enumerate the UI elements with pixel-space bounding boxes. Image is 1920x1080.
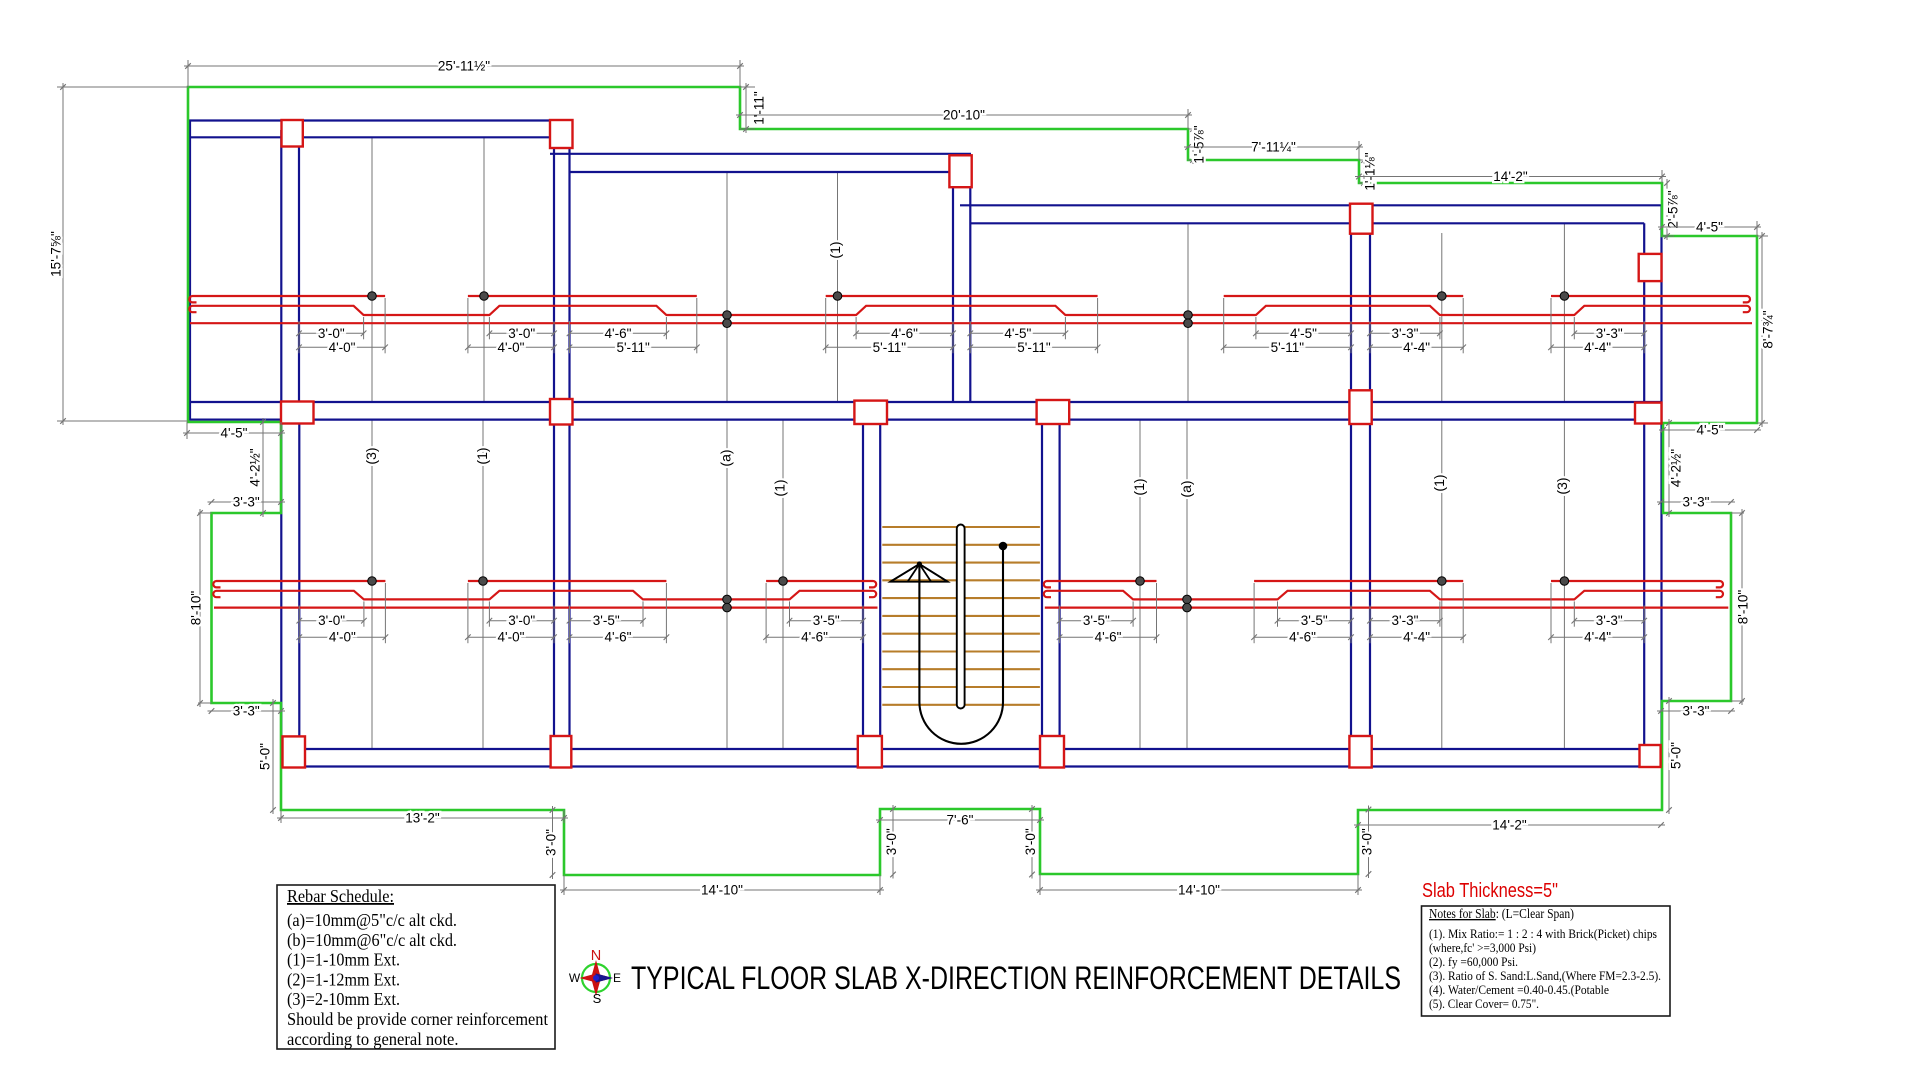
svg-text:Notes for Slab: (L=Clear Span): Notes for Slab: (L=Clear Span): [1429, 906, 1574, 921]
svg-text:(a): (a): [717, 449, 733, 466]
svg-text:4'-6": 4'-6": [801, 630, 828, 645]
svg-text:20'-10": 20'-10": [943, 108, 985, 123]
svg-text:14'-10": 14'-10": [1178, 883, 1220, 898]
svg-text:4'-6": 4'-6": [1095, 630, 1122, 645]
svg-text:(1): (1): [772, 479, 788, 496]
svg-text:4'-6": 4'-6": [1289, 630, 1316, 645]
svg-text:1'-1⅛": 1'-1⅛": [1363, 152, 1378, 190]
svg-text:14'-2": 14'-2": [1493, 169, 1528, 184]
svg-text:4'-0": 4'-0": [498, 630, 525, 645]
svg-text:Rebar Schedule:: Rebar Schedule:: [287, 886, 394, 906]
svg-text:4'-4": 4'-4": [1584, 340, 1611, 355]
svg-text:4'-5": 4'-5": [1004, 326, 1031, 341]
svg-text:3'-0": 3'-0": [318, 613, 345, 628]
svg-text:5'-0": 5'-0": [258, 743, 273, 770]
svg-text:3'-0": 3'-0": [508, 326, 535, 341]
svg-text:5'-11": 5'-11": [616, 340, 650, 355]
svg-text:Slab Thickness=5": Slab Thickness=5": [1422, 880, 1558, 902]
svg-text:5'-11": 5'-11": [873, 340, 907, 355]
svg-text:(2). fy =60,000 Psi.: (2). fy =60,000 Psi.: [1429, 955, 1518, 969]
svg-text:4'-0": 4'-0": [498, 340, 525, 355]
svg-text:3'-3": 3'-3": [1683, 704, 1710, 719]
svg-text:5'-11": 5'-11": [1017, 340, 1051, 355]
svg-text:(a): (a): [1178, 480, 1194, 497]
svg-text:4'-6": 4'-6": [605, 326, 632, 341]
svg-text:(where,fc' >=3,000 Psi): (where,fc' >=3,000 Psi): [1429, 941, 1536, 955]
svg-text:3'-3": 3'-3": [233, 704, 260, 719]
svg-text:(b)=10mm@6"c/c alt ckd.: (b)=10mm@6"c/c alt ckd.: [287, 930, 457, 950]
svg-text:8'-10": 8'-10": [1736, 590, 1751, 625]
svg-text:8'-7¾": 8'-7¾": [1761, 310, 1776, 348]
svg-text:2'-5⅞": 2'-5⅞": [1666, 190, 1681, 228]
svg-text:(a)=10mm@5"c/c alt ckd.: (a)=10mm@5"c/c alt ckd.: [287, 910, 457, 930]
svg-text:3'-0": 3'-0": [508, 613, 535, 628]
svg-text:4'-4": 4'-4": [1403, 630, 1430, 645]
svg-text:4'-5": 4'-5": [221, 426, 248, 441]
svg-text:TYPICAL FLOOR SLAB X-DIRECTION: TYPICAL FLOOR SLAB X-DIRECTION REINFORCE…: [631, 960, 1401, 996]
svg-text:4'-5": 4'-5": [1696, 220, 1723, 235]
svg-text:(1)=1-10mm Ext.: (1)=1-10mm Ext.: [287, 950, 400, 970]
svg-text:(4). Water/Cement =0.40-0.45.(: (4). Water/Cement =0.40-0.45.(Potable: [1429, 983, 1609, 997]
svg-text:4'-4": 4'-4": [1584, 630, 1611, 645]
svg-text:Should be provide corner reinf: Should be provide corner reinforcement: [287, 1009, 548, 1029]
svg-text:3'-3": 3'-3": [1683, 495, 1710, 510]
svg-text:(1): (1): [474, 447, 490, 464]
svg-text:3'-5": 3'-5": [593, 613, 620, 628]
svg-text:14'-2": 14'-2": [1492, 818, 1527, 833]
svg-text:3'-0": 3'-0": [1360, 828, 1375, 855]
svg-text:3'-5": 3'-5": [1083, 613, 1110, 628]
svg-text:3'-3": 3'-3": [1392, 326, 1419, 341]
svg-text:(1): (1): [1131, 478, 1147, 495]
svg-text:(1): (1): [827, 241, 843, 258]
svg-text:4'-6": 4'-6": [891, 326, 918, 341]
svg-text:(3). Ratio of S. Sand:L.Sand,(: (3). Ratio of S. Sand:L.Sand,(Where FM=2…: [1429, 969, 1661, 983]
svg-text:(2)=1-12mm Ext.: (2)=1-12mm Ext.: [287, 969, 400, 989]
svg-text:5'-11": 5'-11": [1271, 340, 1305, 355]
svg-text:3'-0": 3'-0": [318, 326, 345, 341]
svg-text:according to general note.: according to general note.: [287, 1029, 459, 1049]
svg-text:3'-0": 3'-0": [544, 829, 559, 856]
svg-text:1'-11": 1'-11": [752, 91, 767, 125]
svg-text:5'-0": 5'-0": [1669, 742, 1684, 769]
svg-text:4'-4": 4'-4": [1403, 340, 1430, 355]
svg-text:(1): (1): [1431, 474, 1447, 491]
svg-text:(1). Mix Ratio:= 1 : 2 : 4 wit: (1). Mix Ratio:= 1 : 2 : 4 with Brick(Pi…: [1429, 927, 1657, 941]
svg-text:3'-3": 3'-3": [1596, 326, 1623, 341]
svg-text:4'-2½": 4'-2½": [248, 448, 263, 486]
svg-text:3'-3": 3'-3": [1596, 613, 1623, 628]
svg-text:7'-11¼": 7'-11¼": [1251, 140, 1296, 155]
svg-text:4'-5": 4'-5": [1697, 423, 1724, 438]
svg-text:15'-7⅝": 15'-7⅝": [49, 231, 64, 277]
svg-text:1'-5⅞": 1'-5⅞": [1192, 125, 1207, 163]
svg-text:3'-5": 3'-5": [1301, 613, 1328, 628]
svg-text:N: N: [591, 948, 601, 964]
svg-text:4'-0": 4'-0": [329, 340, 356, 355]
svg-text:(5). Clear Cover= 0.75".: (5). Clear Cover= 0.75".: [1429, 997, 1539, 1011]
svg-text:(3): (3): [1554, 477, 1570, 494]
svg-text:4'-0": 4'-0": [329, 630, 356, 645]
svg-text:3'-3": 3'-3": [233, 495, 260, 510]
svg-text:4'-6": 4'-6": [605, 630, 632, 645]
svg-text:13'-2": 13'-2": [405, 811, 440, 826]
svg-text:E: E: [613, 971, 621, 985]
svg-text:3'-5": 3'-5": [813, 613, 840, 628]
svg-text:(3): (3): [363, 447, 379, 464]
svg-text:3'-3": 3'-3": [1392, 613, 1419, 628]
svg-text:25'-11½": 25'-11½": [438, 59, 490, 74]
svg-text:3'-0": 3'-0": [884, 828, 899, 855]
svg-text:S: S: [593, 991, 602, 1006]
svg-text:4'-5": 4'-5": [1290, 326, 1317, 341]
svg-text:W: W: [569, 971, 581, 985]
svg-text:14'-10": 14'-10": [701, 883, 743, 898]
svg-text:7'-6": 7'-6": [947, 813, 974, 828]
svg-text:(3)=2-10mm Ext.: (3)=2-10mm Ext.: [287, 989, 400, 1009]
svg-text:4'-2½": 4'-2½": [1669, 449, 1684, 487]
svg-text:3'-0": 3'-0": [1023, 828, 1038, 855]
svg-text:8'-10": 8'-10": [189, 591, 204, 626]
